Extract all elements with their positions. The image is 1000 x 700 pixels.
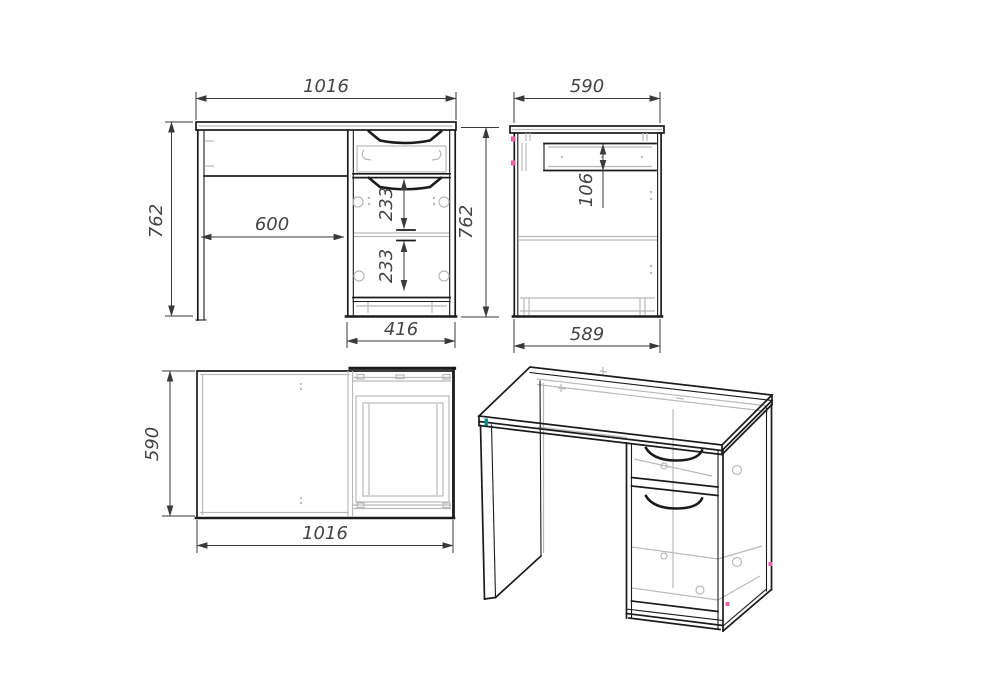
dim-label-top-width: 1016 (302, 523, 348, 544)
drawing-sheet: 1016 762 600 233 233 416 (0, 0, 1000, 700)
dim-top-depth: 590 (142, 371, 195, 516)
dim-front-knee: 600 (201, 214, 344, 237)
dim-label-side-height: 762 (456, 205, 477, 239)
dim-label-front-width: 1016 (303, 76, 349, 97)
side-desktop (510, 126, 664, 133)
iso-desktop (479, 367, 772, 455)
iso-left-panel (481, 381, 542, 599)
iso-interior-gray (537, 367, 768, 600)
dim-label-side-drawer: 106 (576, 173, 597, 207)
side-carcass (511, 133, 662, 317)
top-pedestal-details (348, 371, 451, 517)
iso-drawer-handle (646, 448, 702, 461)
dim-label-front-knee: 600 (255, 214, 289, 235)
dim-side-base: 589 (514, 319, 660, 353)
hardware-marker-teal (485, 419, 489, 426)
isometric-view (479, 367, 773, 631)
dim-label-front-height: 762 (146, 204, 167, 238)
iso-door-handle (646, 496, 702, 509)
front-view: 1016 762 600 233 233 416 (146, 76, 456, 348)
front-desktop (196, 122, 456, 130)
technical-drawing-canvas: 1016 762 600 233 233 416 (0, 0, 1000, 700)
dim-front-drawer1: 233 (376, 180, 404, 229)
front-left-panel (196, 130, 214, 320)
dim-front-pedestal: 416 (347, 319, 455, 348)
dim-label-top-depth: 590 (142, 427, 163, 461)
dim-side-drawer: 106 (576, 144, 603, 208)
hardware-marker-pink (511, 161, 516, 166)
hardware-marker-pink (769, 562, 773, 566)
dim-front-height: 762 (146, 122, 193, 316)
dim-side-depth: 590 (514, 76, 660, 123)
hardware-marker-pink (511, 137, 516, 142)
hardware-marker-pink (726, 602, 730, 606)
dim-top-width: 1016 (197, 520, 453, 553)
top-view: 590 1016 (142, 368, 455, 553)
dim-label-side-depth: 590 (570, 76, 604, 97)
dim-side-height: 762 (456, 128, 499, 318)
dim-front-width: 1016 (196, 76, 456, 120)
drawer-handle (369, 132, 441, 144)
iso-pedestal (627, 443, 724, 631)
dim-label-side-base: 589 (570, 324, 604, 345)
dim-label-front-drawer2: 233 (376, 249, 397, 283)
front-pedestal (346, 130, 456, 317)
top-desktop-details (200, 374, 349, 515)
dim-front-drawer2: 233 (376, 242, 404, 291)
dim-label-front-pedestal: 416 (384, 319, 418, 340)
side-view: 590 762 106 589 (456, 76, 664, 353)
dim-label-front-drawer1: 233 (376, 187, 397, 221)
iso-right-panel (723, 405, 773, 632)
